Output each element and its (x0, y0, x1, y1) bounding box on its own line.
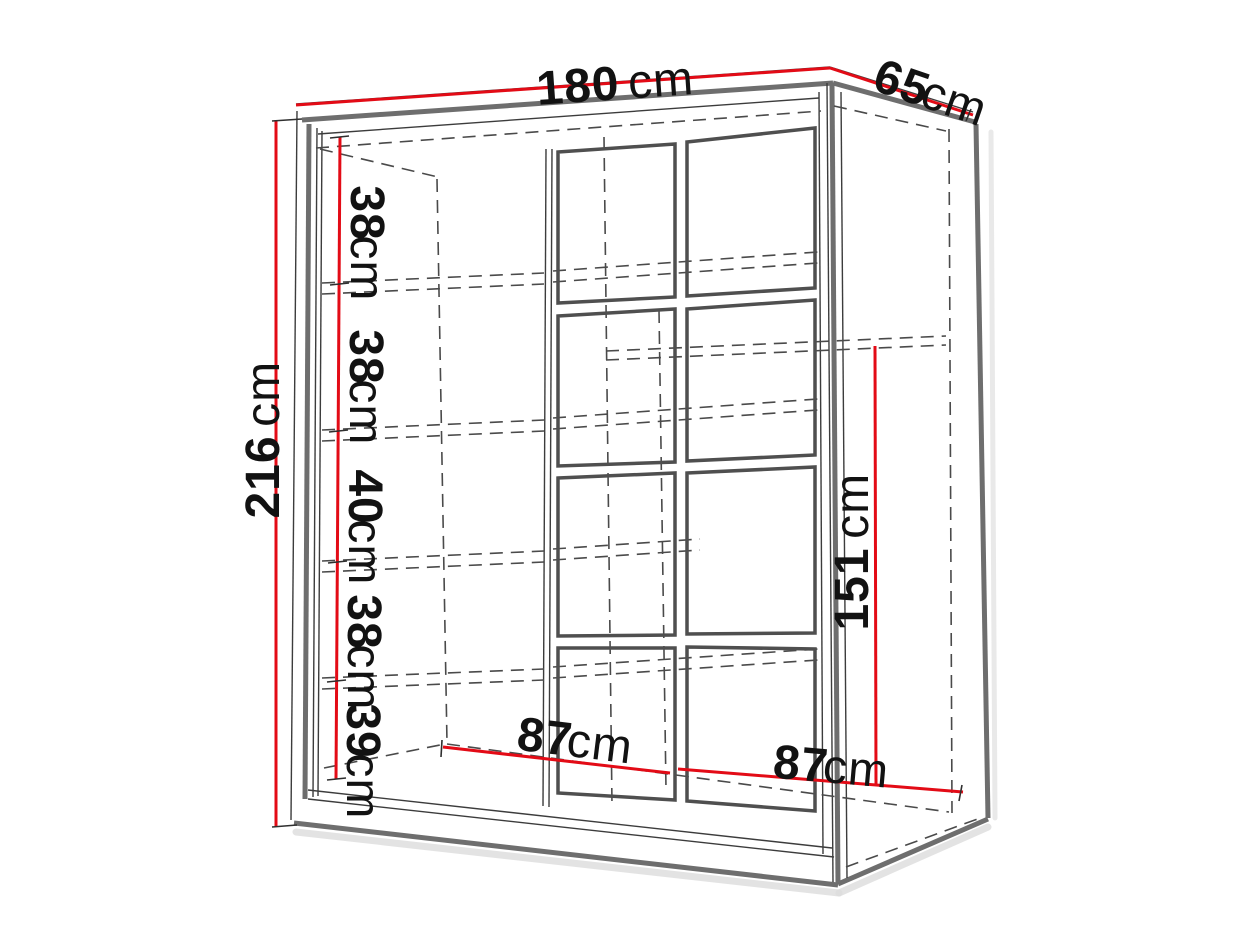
tick (441, 740, 442, 757)
shadow-right-edge (991, 132, 995, 818)
wardrobe-drawing: 180cm 65cm 216cm 38cm 38cm 40cm 38cm 39c… (0, 0, 1255, 941)
label-shelf-height-4: 38cm (337, 594, 390, 710)
label-shelf-height-2: 38cm (339, 329, 392, 445)
left-wall-line-1 (313, 128, 317, 797)
label-height: 216cm (237, 361, 290, 519)
hidden-vertical-middle (604, 137, 612, 805)
wardrobe-dimension-diagram: 180cm 65cm 216cm 38cm 38cm 40cm 38cm 39c… (0, 0, 1255, 941)
shadow-bottom-right (839, 827, 988, 893)
label-shelf-height-5: 39cm (336, 703, 389, 819)
label-inner-height-right: 151cm (826, 473, 879, 631)
left-inner-edge (305, 124, 309, 799)
cubby-cell (558, 309, 675, 466)
shelf-hidden-line-right-top (606, 336, 946, 360)
label-depth: 65cm (867, 49, 994, 137)
bottom-right-edge (838, 819, 988, 884)
center-divider-line-2 (549, 149, 552, 807)
left-outer-line (291, 111, 297, 820)
back-right-edge (976, 124, 988, 818)
hidden-top-left-diagonal (320, 149, 438, 177)
label-shelf-height-3: 40cm (338, 469, 391, 585)
shelf-hidden-line-7 (553, 539, 700, 560)
label-inner-width-right: 87cm (771, 736, 891, 799)
center-divider-line-1 (543, 149, 546, 806)
tick (330, 136, 349, 138)
label-shelf-height-1: 38cm (340, 185, 393, 301)
left-wall-line-2 (318, 131, 322, 796)
cast-shadow (296, 132, 995, 893)
hidden-vertical-back-right (949, 129, 952, 813)
bottom-front-edge (294, 823, 838, 885)
hidden-vertical-left (437, 179, 447, 743)
dimension-labels: 180cm 65cm 216cm 38cm 38cm 40cm 38cm 39c… (237, 49, 994, 819)
cubby-cell (687, 467, 815, 634)
label-width: 180cm (535, 52, 696, 116)
label-inner-width-left: 87cm (514, 708, 636, 775)
cubby-cell (558, 473, 675, 636)
hidden-vertical-middle-2 (659, 310, 666, 789)
cubby-cell (687, 300, 815, 461)
shadow-bottom-front (296, 832, 839, 893)
cubby-cell (558, 144, 675, 303)
cubby-compartments (558, 128, 815, 811)
